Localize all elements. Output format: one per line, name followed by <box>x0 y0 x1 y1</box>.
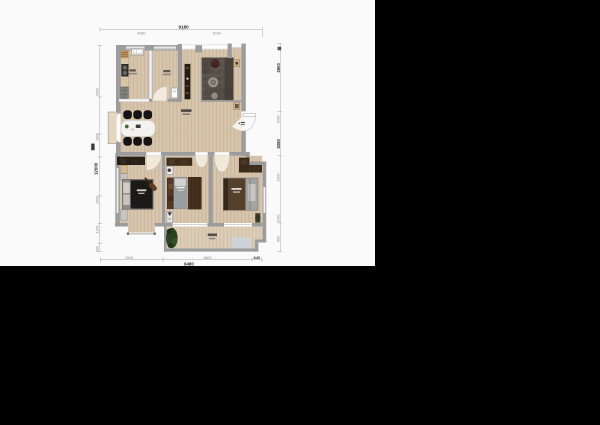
svg-text:600: 600 <box>96 246 100 252</box>
svg-text:4080: 4080 <box>138 31 146 35</box>
svg-text:9180: 9180 <box>179 24 190 29</box>
svg-text:2900: 2900 <box>277 174 281 182</box>
svg-text:1540: 1540 <box>125 256 133 260</box>
svg-text:600: 600 <box>277 236 281 242</box>
svg-text:2900: 2900 <box>96 196 100 204</box>
svg-text:9480: 9480 <box>184 261 194 266</box>
svg-text:840: 840 <box>254 255 261 260</box>
svg-text:2600: 2600 <box>276 63 281 73</box>
svg-text:12000: 12000 <box>94 162 99 175</box>
svg-text:3000: 3000 <box>96 88 100 96</box>
svg-text:2000: 2000 <box>277 116 281 124</box>
svg-text:1300: 1300 <box>277 215 281 223</box>
svg-text:8280: 8280 <box>276 139 281 149</box>
svg-text:1200: 1200 <box>96 226 100 234</box>
svg-text:5100: 5100 <box>213 31 221 35</box>
svg-text:4800: 4800 <box>204 256 212 260</box>
svg-text:1800: 1800 <box>96 133 100 141</box>
